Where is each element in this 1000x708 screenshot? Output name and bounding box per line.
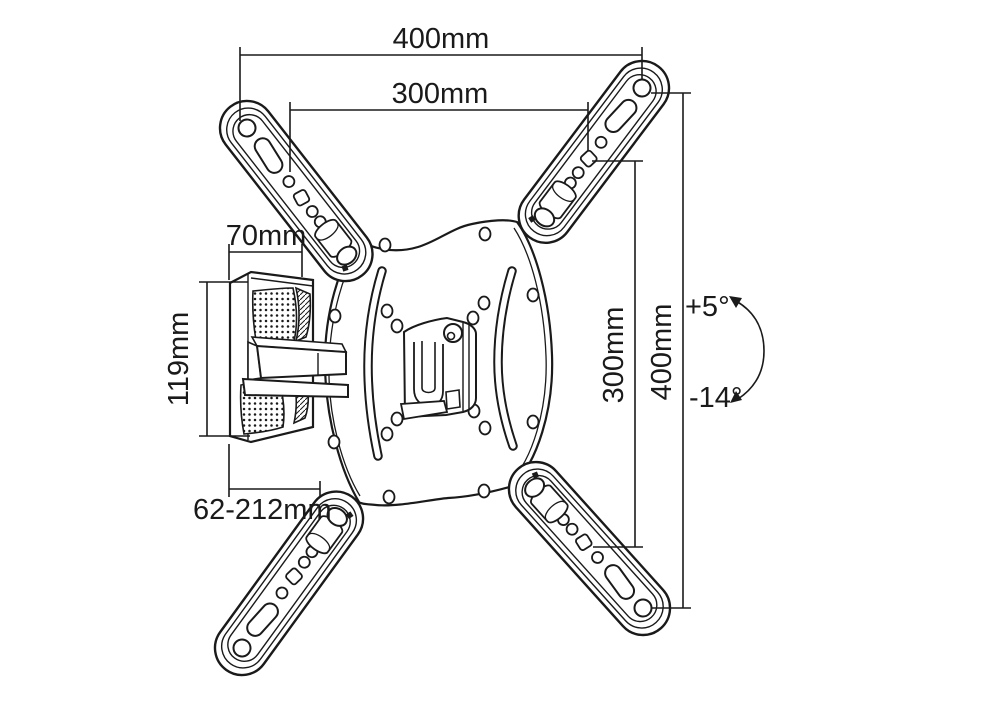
- dim-extension-range: 62-212mm: [193, 444, 332, 526]
- dim-label-right-height-outer: 400mm: [646, 304, 678, 401]
- tilt-bracket: [401, 318, 476, 419]
- tilt-up-label: +5°: [685, 291, 730, 323]
- mounting-arm-top-left: [209, 90, 383, 292]
- drawing-canvas: 400mm 300mm 400mm 300mm 70mm 119mm 62-21…: [0, 0, 1000, 708]
- mount-diagram: 400mm 300mm 400mm 300mm 70mm 119mm 62-21…: [0, 0, 1000, 708]
- dim-label-top-width-inner: 300mm: [392, 78, 489, 110]
- tilt-angle-annotation: +5° -14°: [685, 291, 764, 414]
- mounting-arm-top-right: [508, 50, 680, 253]
- dim-top-width-inner: 300mm: [290, 78, 588, 172]
- tilt-arrow-up: [729, 296, 742, 308]
- dim-label-left-height: 119mm: [163, 312, 195, 407]
- dim-label-left-depth: 70mm: [226, 220, 307, 252]
- tilt-down-label: -14°: [689, 382, 743, 414]
- articulating-arm-side-view: [243, 337, 348, 397]
- mounting-arm-bottom-right: [498, 451, 681, 646]
- dim-right-height-inner: 300mm: [592, 161, 643, 547]
- dim-left-depth: 70mm: [226, 220, 307, 280]
- dim-label-top-width-outer: 400mm: [393, 23, 490, 55]
- dim-label-right-height-inner: 300mm: [598, 307, 630, 404]
- dim-right-height-outer: 400mm: [646, 93, 691, 608]
- dim-label-extension-range: 62-212mm: [193, 494, 332, 526]
